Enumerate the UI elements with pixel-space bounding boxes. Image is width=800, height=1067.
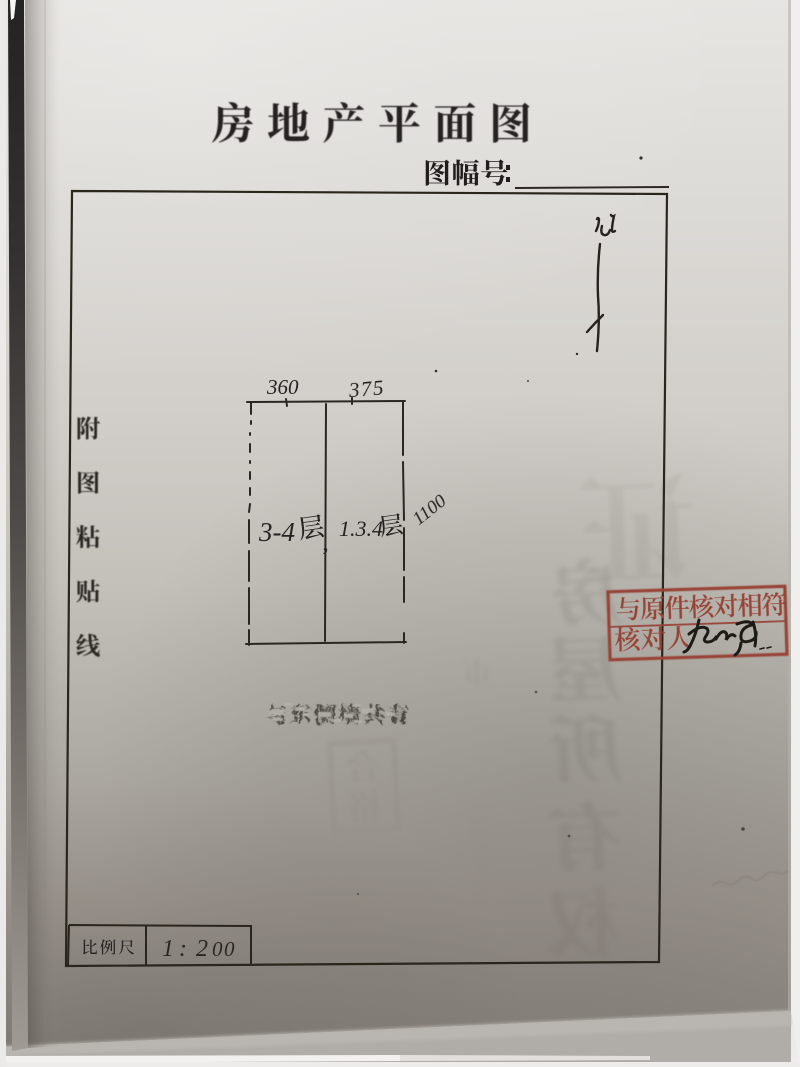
svg-text:Y1100000: Y1100000 xyxy=(467,798,492,913)
svg-text:1:200: 1:200 xyxy=(162,936,235,962)
svg-text:360: 360 xyxy=(266,375,299,399)
svg-text:1.3.4: 1.3.4 xyxy=(339,516,383,541)
svg-text:375: 375 xyxy=(347,375,386,402)
svg-text:3-4: 3-4 xyxy=(258,517,295,547)
svg-text:,: , xyxy=(323,534,328,556)
